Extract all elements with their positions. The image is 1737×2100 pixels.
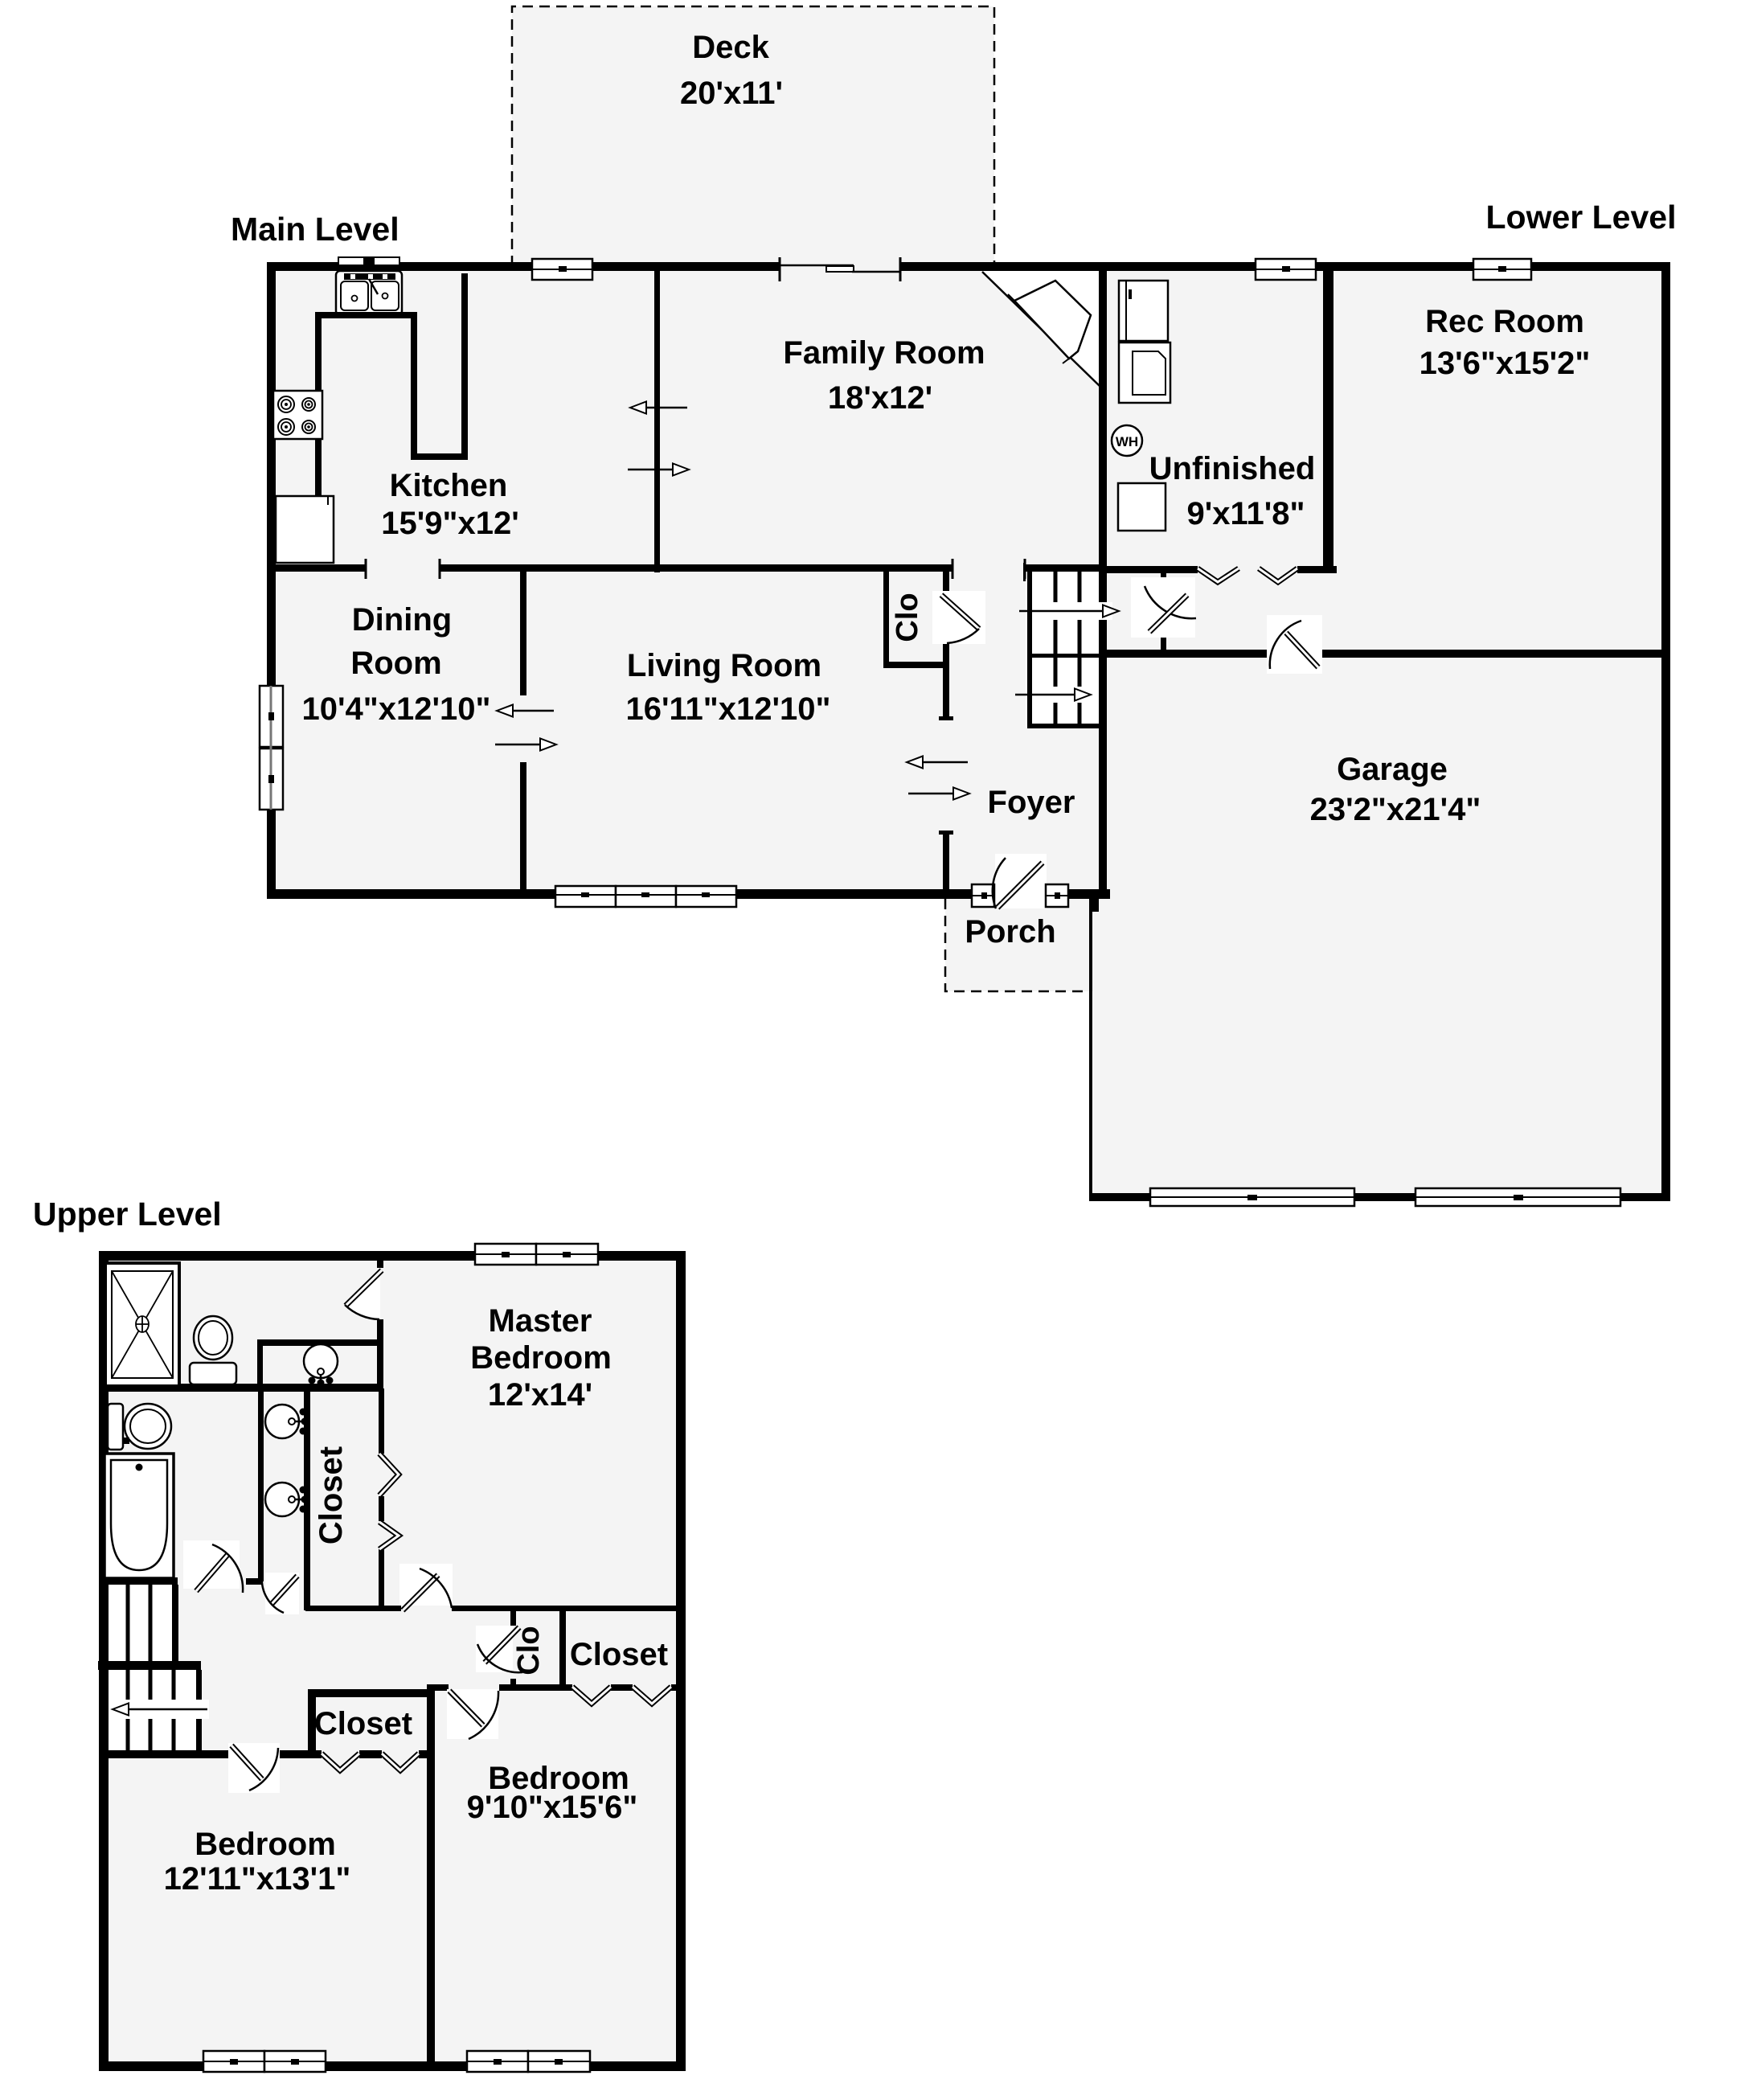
- svg-text:Upper Level: Upper Level: [33, 1196, 222, 1233]
- svg-text:Unfinished: Unfinished: [1149, 451, 1316, 486]
- svg-text:Foyer: Foyer: [988, 785, 1075, 820]
- svg-text:12'x14': 12'x14': [488, 1377, 592, 1413]
- svg-text:Deck: Deck: [692, 30, 769, 65]
- svg-text:13'6"x15'2": 13'6"x15'2": [1420, 346, 1591, 381]
- svg-text:Kitchen: Kitchen: [390, 468, 508, 503]
- svg-text:12'11"x13'1": 12'11"x13'1": [164, 1861, 351, 1897]
- svg-text:9'x11'8": 9'x11'8": [1186, 496, 1305, 531]
- svg-text:23'2"x21'4": 23'2"x21'4": [1310, 792, 1481, 827]
- svg-text:Lower Level: Lower Level: [1486, 199, 1677, 236]
- svg-text:Main Level: Main Level: [231, 211, 399, 248]
- svg-text:Closet: Closet: [313, 1446, 349, 1544]
- svg-text:Porch: Porch: [965, 914, 1055, 950]
- svg-text:10'4"x12'10": 10'4"x12'10": [302, 691, 491, 727]
- svg-text:Family Room: Family Room: [783, 335, 985, 371]
- svg-text:15'9"x12': 15'9"x12': [381, 506, 518, 541]
- svg-text:18'x12': 18'x12': [828, 380, 932, 416]
- svg-text:Closet: Closet: [570, 1637, 668, 1672]
- svg-text:Bedroom: Bedroom: [470, 1340, 612, 1376]
- svg-text:WH: WH: [1116, 434, 1138, 449]
- svg-text:Closet: Closet: [314, 1706, 412, 1741]
- svg-text:Garage: Garage: [1337, 752, 1448, 787]
- svg-text:Clo: Clo: [512, 1626, 546, 1675]
- svg-text:Room: Room: [350, 646, 441, 681]
- svg-text:Bedroom: Bedroom: [195, 1827, 336, 1862]
- svg-text:Living Room: Living Room: [627, 648, 821, 683]
- svg-text:Rec Room: Rec Room: [1425, 304, 1584, 339]
- svg-text:Dining: Dining: [352, 602, 452, 638]
- svg-text:Clo: Clo: [891, 593, 924, 642]
- svg-text:9'10"x15'6": 9'10"x15'6": [467, 1790, 638, 1825]
- svg-text:Master: Master: [489, 1303, 592, 1339]
- svg-text:20'x11': 20'x11': [680, 76, 783, 111]
- svg-text:16'11"x12'10": 16'11"x12'10": [626, 691, 831, 727]
